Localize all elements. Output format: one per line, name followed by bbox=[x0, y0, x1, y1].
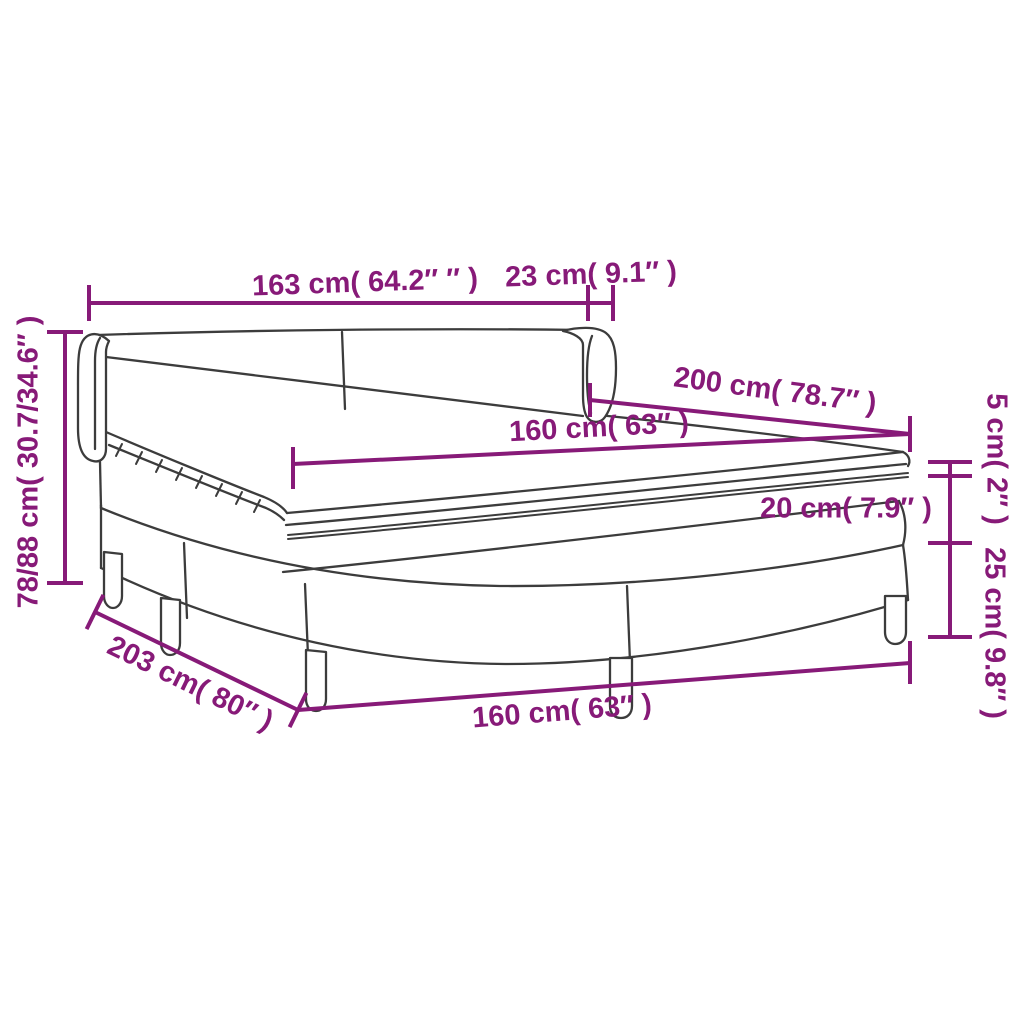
label-total-height: 78/88 cm( 30.7/34.6″ ) bbox=[15, 316, 44, 609]
base-bottom-edge bbox=[101, 568, 908, 664]
headboard-middle-seam bbox=[342, 332, 345, 409]
label-wing-depth: 23 cm( 9.1″ ) bbox=[505, 258, 678, 293]
label-topper-height: 5 cm( 2″ ) bbox=[982, 393, 1011, 525]
base-seam-1 bbox=[184, 543, 187, 618]
topper-left-lower-edge bbox=[109, 445, 284, 520]
label-base-height: 25 cm( 9.8″ ) bbox=[980, 547, 1009, 719]
bed-leg bbox=[104, 552, 122, 608]
dimension-diagram: 163 cm( 64.2″ ″ ) 23 cm( 9.1″ ) 200 cm( … bbox=[0, 0, 1024, 1024]
left-end-edge bbox=[100, 462, 101, 508]
bed-leg bbox=[306, 650, 326, 711]
dim-heights-right bbox=[928, 462, 972, 637]
bed-leg bbox=[885, 596, 906, 644]
base-seam-3 bbox=[627, 586, 630, 662]
headboard-top-edge bbox=[97, 329, 584, 335]
base-right-edge bbox=[903, 545, 908, 600]
headboard-left-wing bbox=[78, 334, 109, 461]
base-seam-2 bbox=[305, 584, 308, 656]
label-mattress-height: 20 cm( 7.9″ ) bbox=[760, 495, 932, 524]
